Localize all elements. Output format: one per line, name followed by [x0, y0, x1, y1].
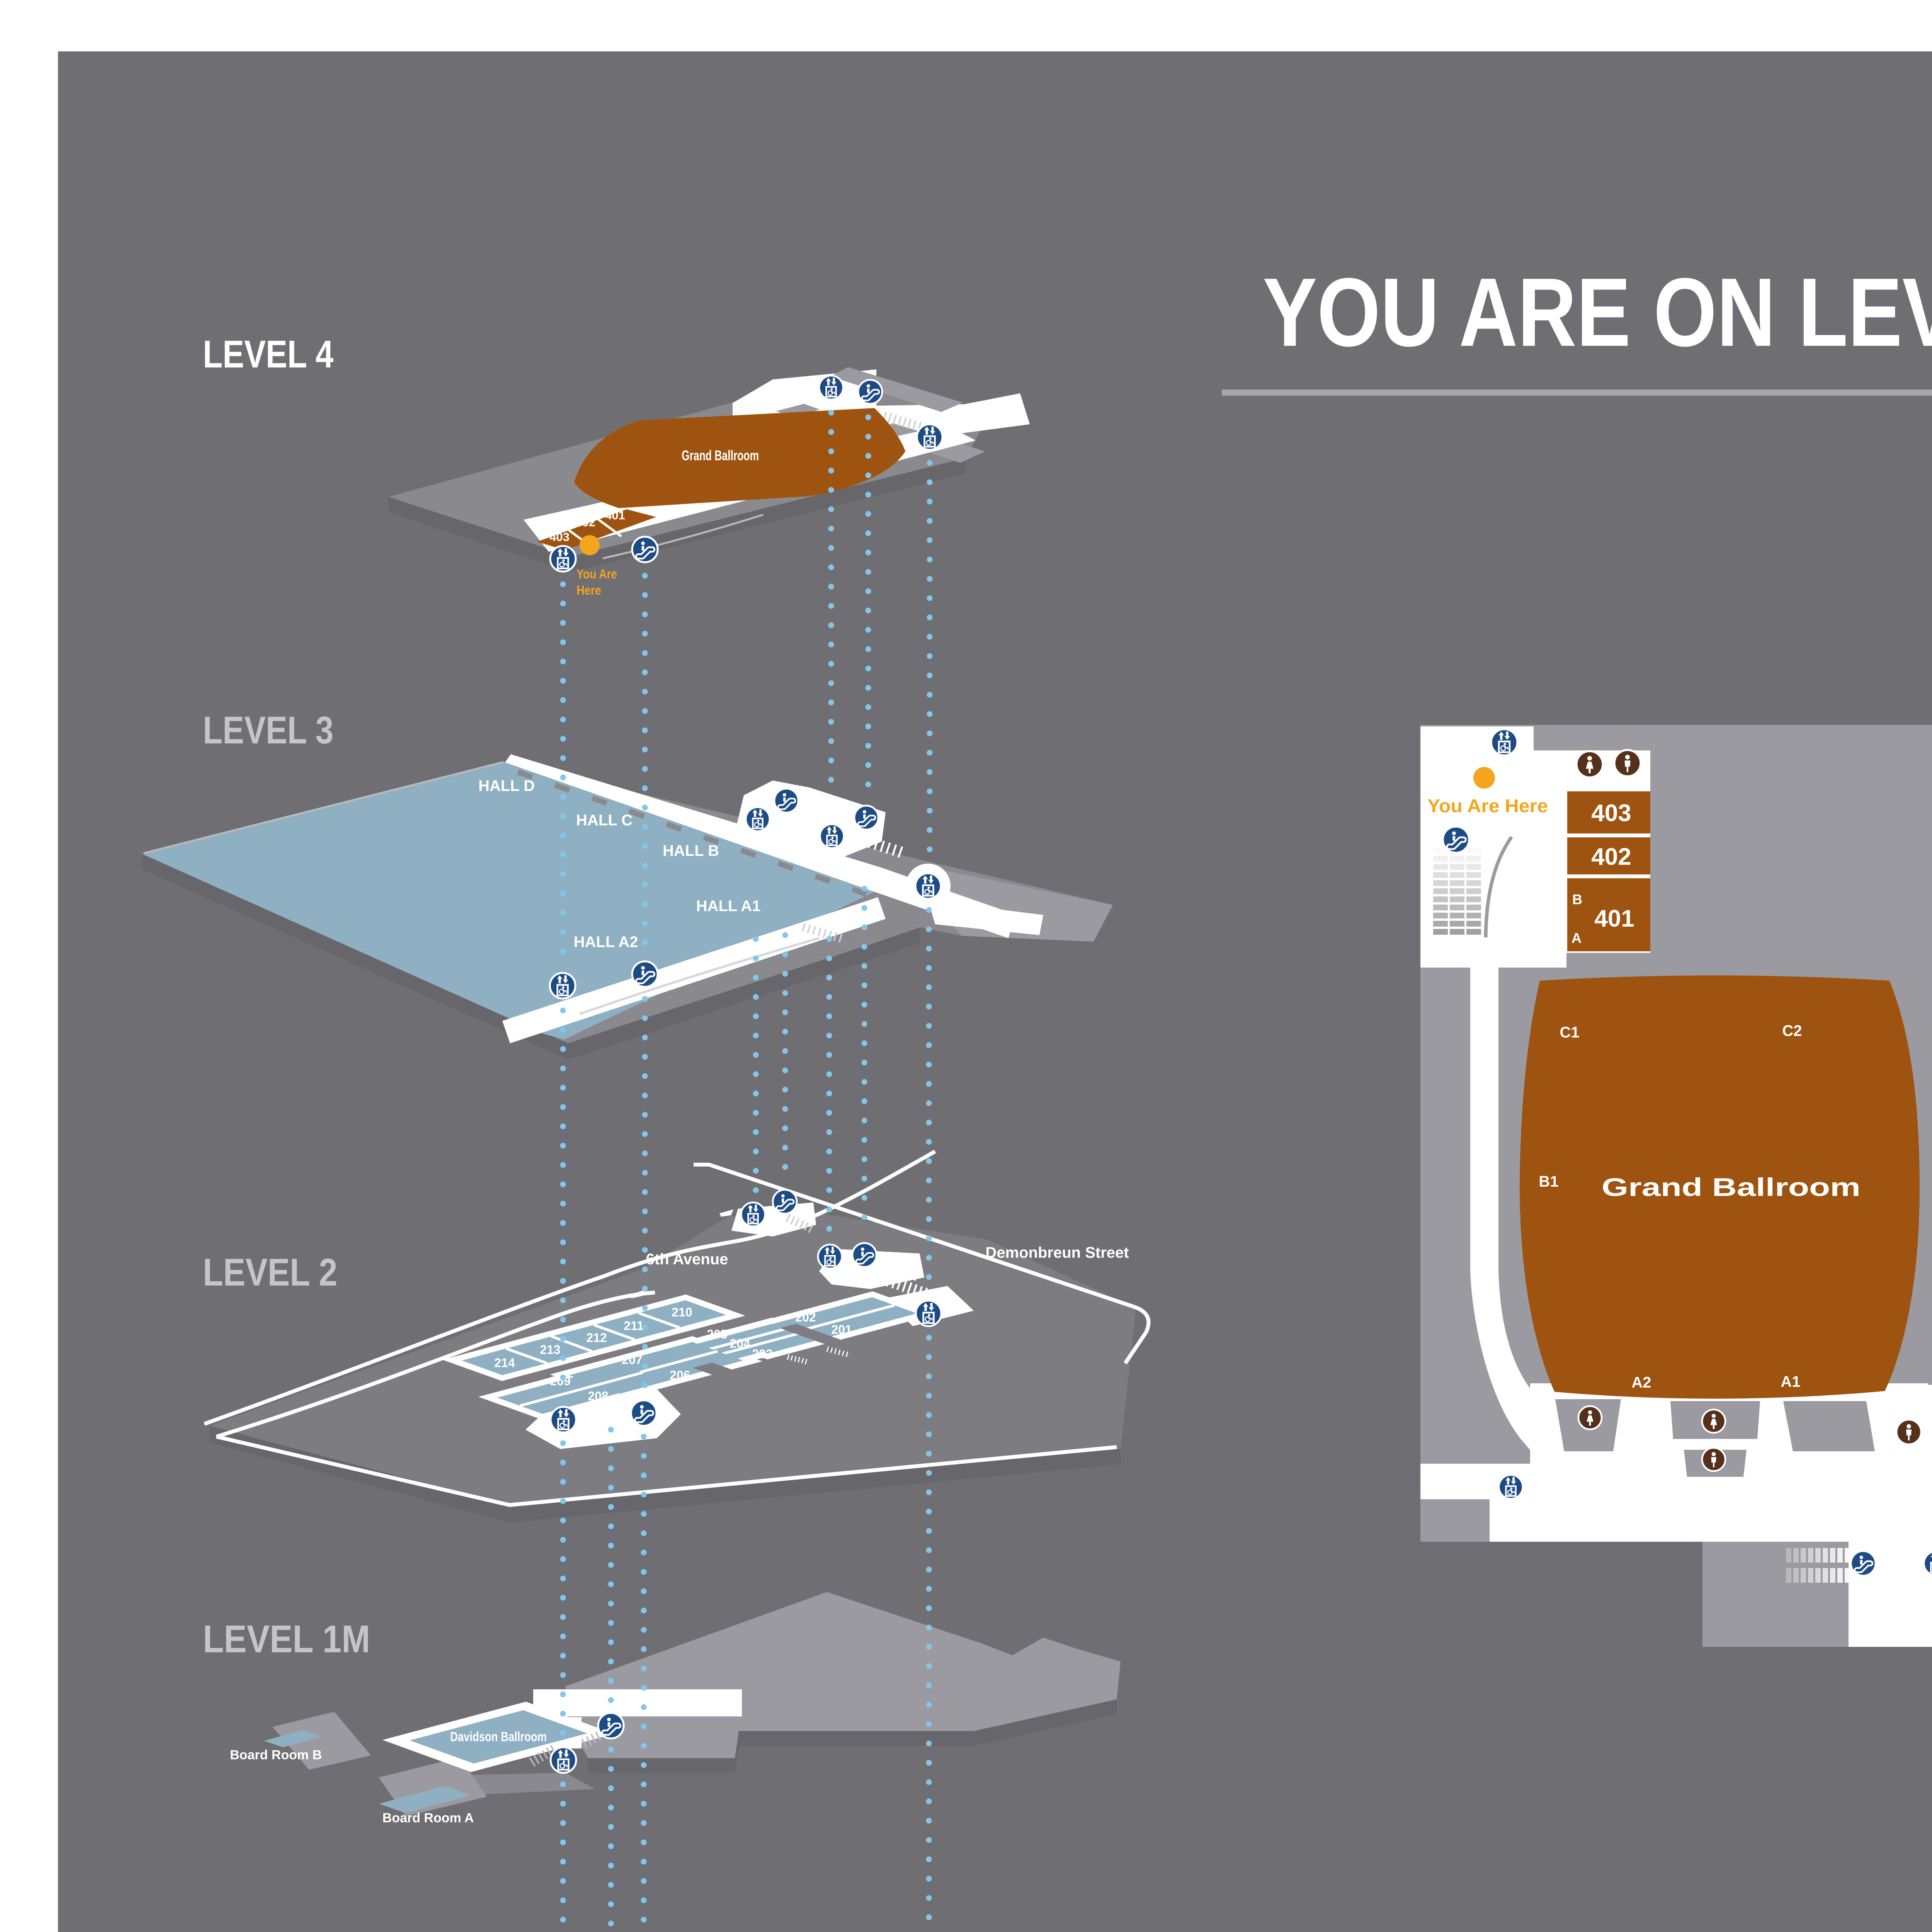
svg-text:You Are Here: You Are Here [1427, 796, 1548, 816]
svg-text:203: 203 [752, 1347, 772, 1361]
svg-text:211: 211 [624, 1319, 644, 1333]
svg-text:212: 212 [586, 1331, 607, 1345]
svg-text:207: 207 [622, 1353, 642, 1367]
svg-text:201: 201 [831, 1323, 852, 1337]
svg-text:204: 204 [730, 1337, 750, 1350]
svg-text:205: 205 [707, 1327, 727, 1341]
svg-text:401: 401 [605, 509, 625, 522]
svg-text:HALL C: HALL C [576, 812, 633, 829]
svg-text:A1: A1 [1781, 1373, 1800, 1390]
svg-text:403: 403 [1591, 800, 1631, 827]
svg-text:Grand Ballroom: Grand Ballroom [682, 447, 759, 463]
svg-text:402: 402 [1591, 844, 1631, 870]
svg-text:401: 401 [1594, 905, 1634, 932]
svg-text:Board Room B: Board Room B [230, 1748, 322, 1762]
svg-text:210: 210 [672, 1305, 692, 1319]
svg-text:A2: A2 [1631, 1374, 1651, 1391]
svg-text:208: 208 [588, 1389, 608, 1403]
svg-text:6th Avenue: 6th Avenue [646, 1251, 728, 1268]
svg-text:LEVEL 3: LEVEL 3 [203, 709, 333, 752]
svg-text:Davidson Ballroom: Davidson Ballroom [450, 1730, 547, 1744]
svg-text:403: 403 [549, 530, 570, 544]
svg-text:C2: C2 [1782, 1022, 1802, 1039]
svg-text:C1: C1 [1560, 1024, 1579, 1041]
svg-text:A: A [1571, 930, 1582, 946]
svg-text:LEVEL 2: LEVEL 2 [203, 1251, 337, 1294]
svg-text:B: B [1572, 891, 1582, 907]
svg-text:Here: Here [577, 583, 601, 598]
svg-text:HALL B: HALL B [663, 842, 719, 859]
svg-text:Grand Ballroom: Grand Ballroom [1602, 1173, 1861, 1201]
svg-text:202: 202 [795, 1310, 816, 1324]
svg-text:213: 213 [540, 1343, 560, 1357]
svg-text:HALL A2: HALL A2 [574, 934, 638, 951]
svg-text:206: 206 [670, 1368, 690, 1382]
svg-text:B1: B1 [1539, 1173, 1558, 1190]
svg-text:You Are: You Are [577, 567, 617, 582]
svg-text:Board Room A: Board Room A [383, 1811, 474, 1825]
svg-text:LEVEL 4: LEVEL 4 [203, 333, 333, 376]
svg-text:Demonbreun Street: Demonbreun Street [985, 1244, 1129, 1261]
svg-text:HALL A1: HALL A1 [696, 898, 761, 915]
svg-text:402: 402 [575, 515, 595, 529]
svg-text:YOU ARE ON LEVEL 4: YOU ARE ON LEVEL 4 [1263, 258, 1932, 367]
svg-text:HALL D: HALL D [478, 777, 535, 794]
svg-text:214: 214 [494, 1356, 515, 1370]
svg-text:209: 209 [550, 1374, 570, 1388]
svg-text:LEVEL 1M: LEVEL 1M [203, 1617, 370, 1661]
